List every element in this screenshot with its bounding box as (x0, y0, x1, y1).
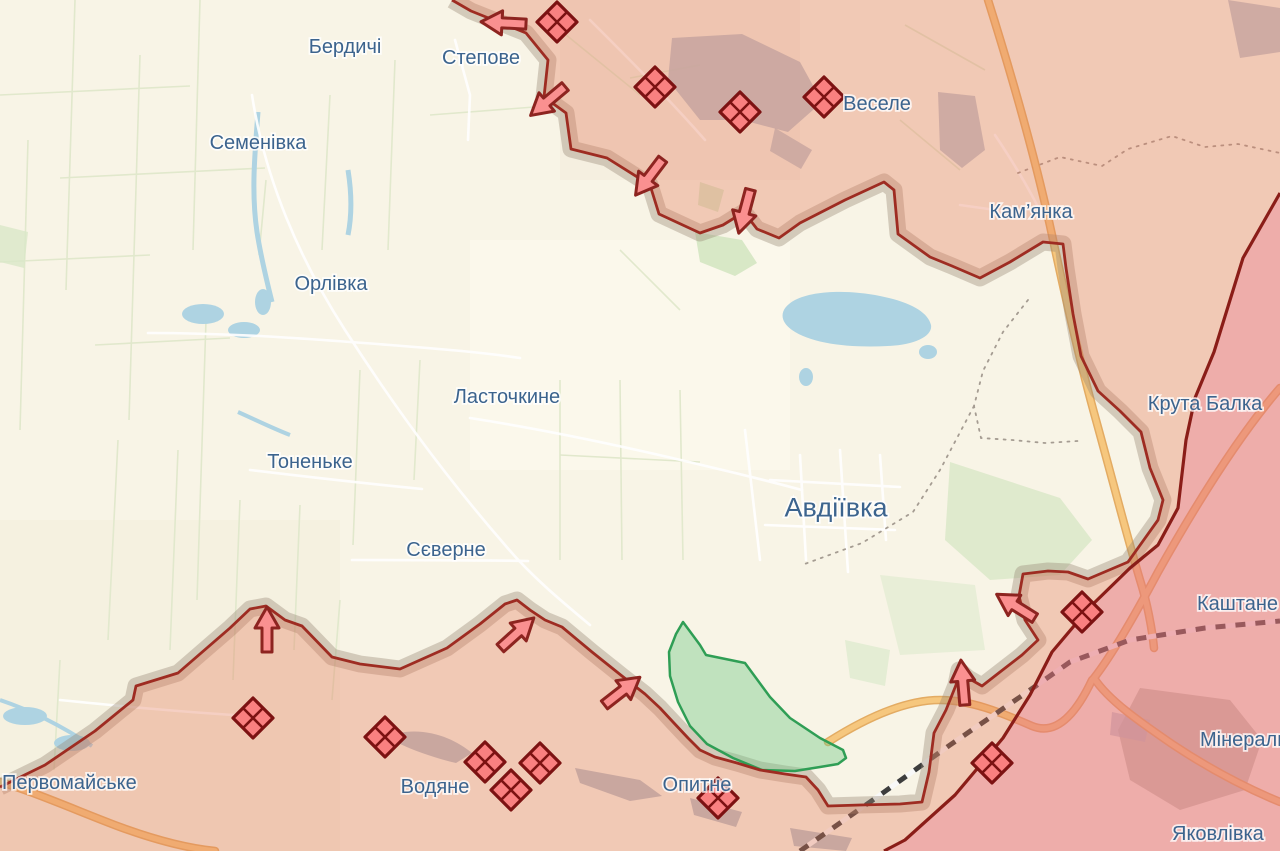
place-label-vesele: Веселе (843, 93, 911, 115)
place-label-yakovlivka: Яковлівка (1172, 823, 1265, 845)
place-label-lastochkyne: Ласточкине (454, 386, 560, 408)
place-label-semenivka: Семенівка (210, 132, 308, 154)
place-label-kashtane: Каштане (1197, 593, 1278, 615)
place-label-tonenke: Тоненьке (267, 451, 353, 473)
place-label-opytne: Опитне (663, 774, 732, 796)
place-label-avdiivka: Авдіївка (784, 492, 888, 522)
place-label-kamianka: Кам’янка (989, 201, 1073, 223)
place-label-stepove: Степове (442, 47, 520, 69)
place-label-sieverne: Сєверне (406, 539, 485, 561)
place-label-vodiane: Водяне (401, 776, 470, 798)
place-label-mineralne: Мінеральне (1200, 729, 1280, 751)
place-label-pervomaiske: Первомайське (2, 772, 137, 794)
place-label-kruta-balka: Крута Балка (1148, 393, 1263, 415)
map-canvas[interactable]: БердичіСтеповеСеменівкаОрлівкаЛасточкине… (0, 0, 1280, 851)
place-label-berdychi: Бердичі (309, 36, 382, 58)
place-label-orlivka: Орлівка (294, 273, 368, 295)
